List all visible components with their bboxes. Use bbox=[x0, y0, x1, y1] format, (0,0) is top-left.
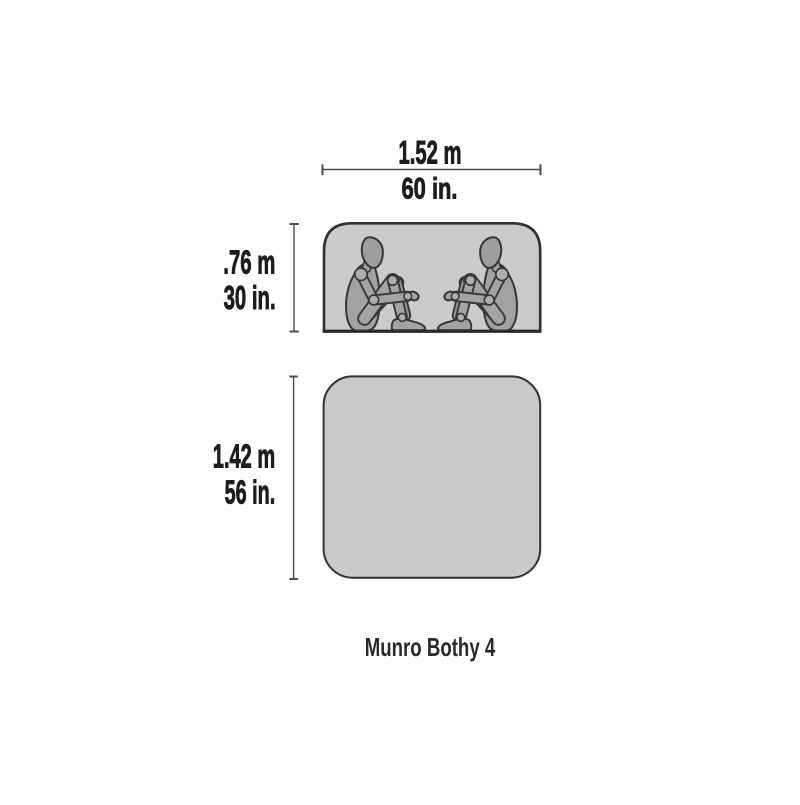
svg-text:1.42 m: 1.42 m bbox=[213, 437, 275, 474]
svg-text:60 in.: 60 in. bbox=[402, 173, 458, 206]
svg-text:30 in.: 30 in. bbox=[224, 279, 276, 316]
svg-text:56 in.: 56 in. bbox=[225, 473, 276, 510]
svg-text:1.52 m: 1.52 m bbox=[399, 135, 462, 171]
svg-text:Munro Bothy 4: Munro Bothy 4 bbox=[365, 632, 496, 662]
svg-text:.76 m: .76 m bbox=[223, 243, 275, 280]
